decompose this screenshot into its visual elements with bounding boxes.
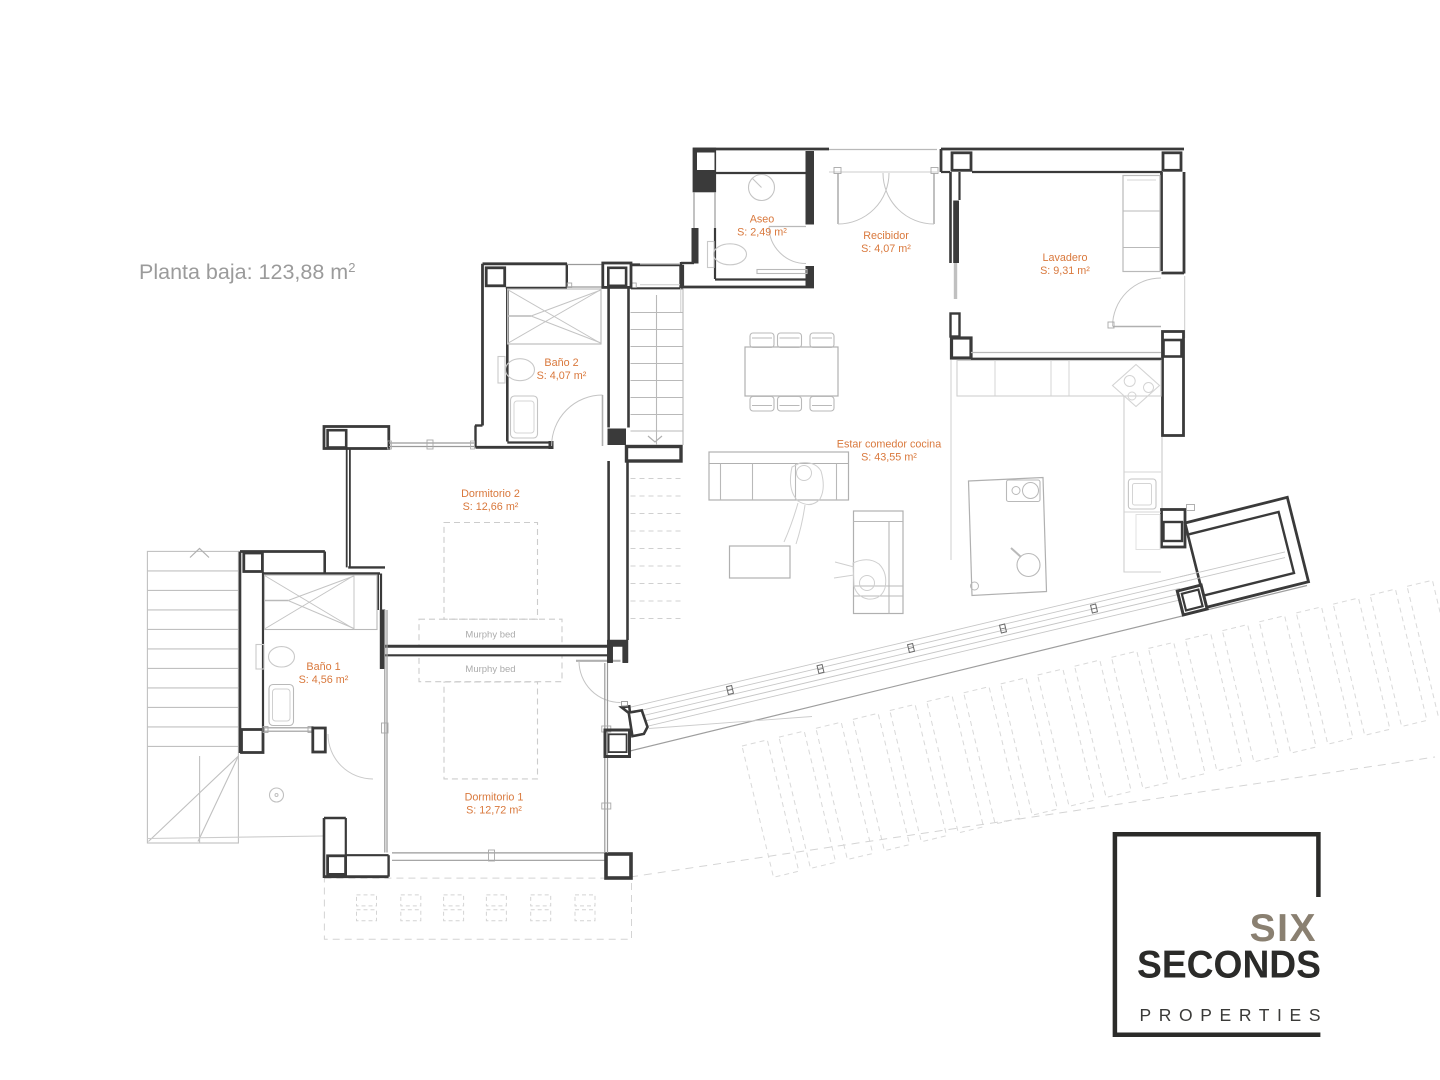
svg-text:SECONDS: SECONDS: [1137, 944, 1321, 987]
svg-text:Dormitorio 2: Dormitorio 2: [461, 488, 520, 500]
svg-text:S: 12,72 m²: S: 12,72 m²: [466, 805, 522, 817]
svg-text:S: 4,07 m²: S: 4,07 m²: [861, 243, 911, 255]
svg-text:Baño 2: Baño 2: [544, 357, 578, 369]
svg-text:Recibidor: Recibidor: [863, 230, 909, 242]
svg-text:Planta baja: 123,88 m2: Planta baja: 123,88 m2: [139, 260, 355, 284]
svg-text:Lavadero: Lavadero: [1042, 252, 1087, 264]
svg-text:Baño 1: Baño 1: [306, 661, 340, 673]
svg-text:Murphy bed: Murphy bed: [465, 630, 515, 641]
svg-text:S: 2,49 m²: S: 2,49 m²: [737, 227, 787, 239]
svg-text:S: 12,66 m²: S: 12,66 m²: [463, 501, 519, 513]
svg-text:S: 4,07 m²: S: 4,07 m²: [537, 370, 587, 382]
svg-text:S: 4,56 m²: S: 4,56 m²: [299, 674, 349, 686]
svg-text:S: 43,55 m²: S: 43,55 m²: [861, 452, 917, 464]
svg-text:Dormitorio 1: Dormitorio 1: [465, 792, 524, 804]
svg-text:PROPERTIES: PROPERTIES: [1140, 1005, 1321, 1025]
svg-text:Murphy bed: Murphy bed: [465, 664, 515, 675]
svg-text:S: 9,31 m²: S: 9,31 m²: [1040, 265, 1090, 277]
svg-text:Estar comedor cocina: Estar comedor cocina: [837, 439, 941, 451]
svg-text:Aseo: Aseo: [750, 214, 775, 226]
